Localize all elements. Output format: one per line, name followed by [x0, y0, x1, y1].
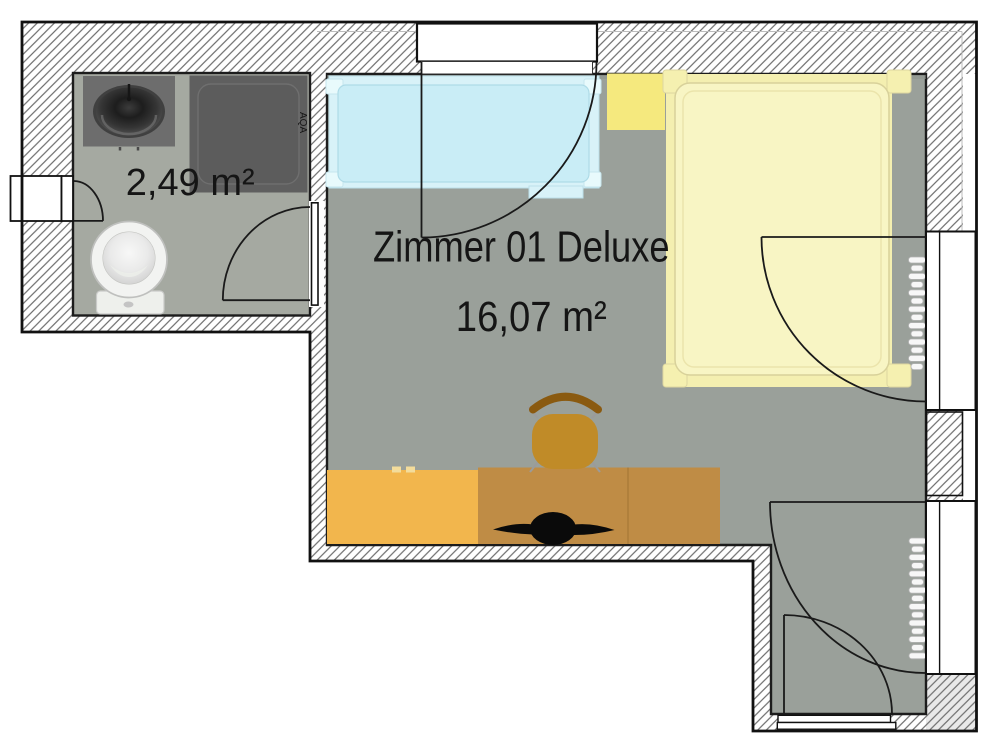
svg-text:2,49 m²: 2,49 m²: [126, 162, 255, 204]
svg-text:AQA: AQA: [297, 112, 308, 133]
svg-text:16,07 m²: 16,07 m²: [456, 292, 607, 340]
svg-text:Zimmer 01 Deluxe: Zimmer 01 Deluxe: [373, 222, 670, 271]
